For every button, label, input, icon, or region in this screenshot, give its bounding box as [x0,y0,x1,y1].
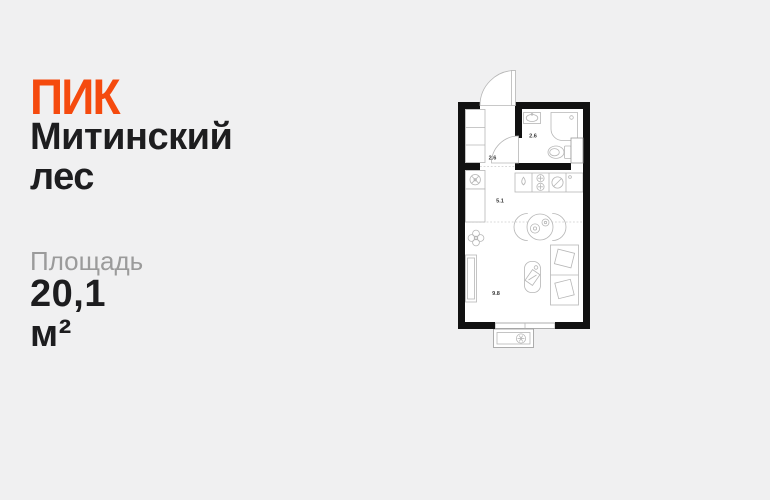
project-title-line2: лес [30,157,232,197]
room-label-kitchen: 5.1 [496,199,504,205]
floor-plan: 2.6 2.6 5.1 9.8 [450,60,600,360]
project-title-line1: Митинский [30,117,232,157]
room-label-bathroom: 2.6 [529,134,537,140]
kitchen-cabinet [466,189,486,222]
washing-machine [466,171,486,190]
entry-closet [466,110,486,163]
duct-shaft [571,138,583,163]
bed [551,245,579,305]
area-label: Площадь [30,246,143,276]
room-label-living: 9.8 [492,291,500,297]
toilet [548,146,571,159]
listing-card: ПИК Митинский лес Площадь 20,1 м² [0,0,770,500]
wardrobe [466,255,477,302]
area-value: 20,1 м² [30,274,106,354]
entrance-door [480,71,516,106]
door-leaf [512,71,516,106]
kitchen-counter [515,173,583,192]
bathroom-sink [524,113,541,124]
shower [551,113,578,141]
armchair [525,262,541,293]
project-title: Митинский лес [30,117,232,197]
room-label-hallway: 2.6 [489,156,497,162]
balcony [494,329,534,348]
window [495,323,555,329]
